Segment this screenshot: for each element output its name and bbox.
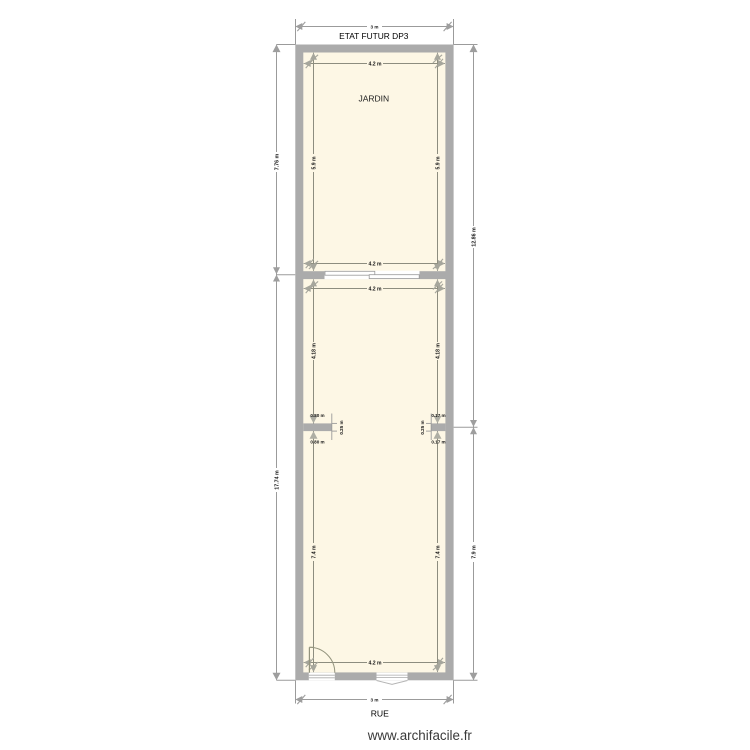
svg-text:ETAT FUTUR DP3: ETAT FUTUR DP3 [339, 31, 409, 41]
svg-text:0.17 m: 0.17 m [431, 440, 445, 445]
svg-text:7.76 m: 7.76 m [275, 153, 281, 170]
svg-text:5.9 m: 5.9 m [312, 156, 318, 169]
svg-text:12.86 m: 12.86 m [472, 227, 478, 247]
svg-text:7.4 m: 7.4 m [436, 545, 442, 558]
svg-text:4.2 m: 4.2 m [368, 61, 381, 67]
svg-text:3 m: 3 m [371, 25, 379, 30]
svg-text:0.80 m: 0.80 m [310, 413, 324, 418]
svg-text:4.18 m: 4.18 m [436, 343, 442, 359]
svg-text:JARDIN: JARDIN [358, 94, 389, 104]
svg-text:4.2 m: 4.2 m [368, 261, 381, 267]
svg-text:4.2 m: 4.2 m [368, 661, 381, 667]
svg-text:RUE: RUE [371, 709, 389, 719]
svg-text:5.9 m: 5.9 m [436, 156, 442, 169]
svg-text:4.18 m: 4.18 m [312, 343, 318, 359]
svg-text:0.25 m: 0.25 m [420, 420, 425, 434]
svg-text:0.80 m: 0.80 m [310, 440, 324, 445]
svg-text:7.4 m: 7.4 m [312, 545, 318, 558]
svg-text:3 m: 3 m [371, 698, 379, 703]
svg-text:www.archifacile.fr: www.archifacile.fr [367, 728, 473, 743]
svg-text:0.25 m: 0.25 m [339, 420, 344, 434]
svg-text:0.17 m: 0.17 m [431, 413, 445, 418]
svg-text:7.9 m: 7.9 m [472, 545, 478, 559]
svg-text:17.74 m: 17.74 m [275, 470, 281, 490]
svg-text:4.2 m: 4.2 m [368, 287, 381, 293]
